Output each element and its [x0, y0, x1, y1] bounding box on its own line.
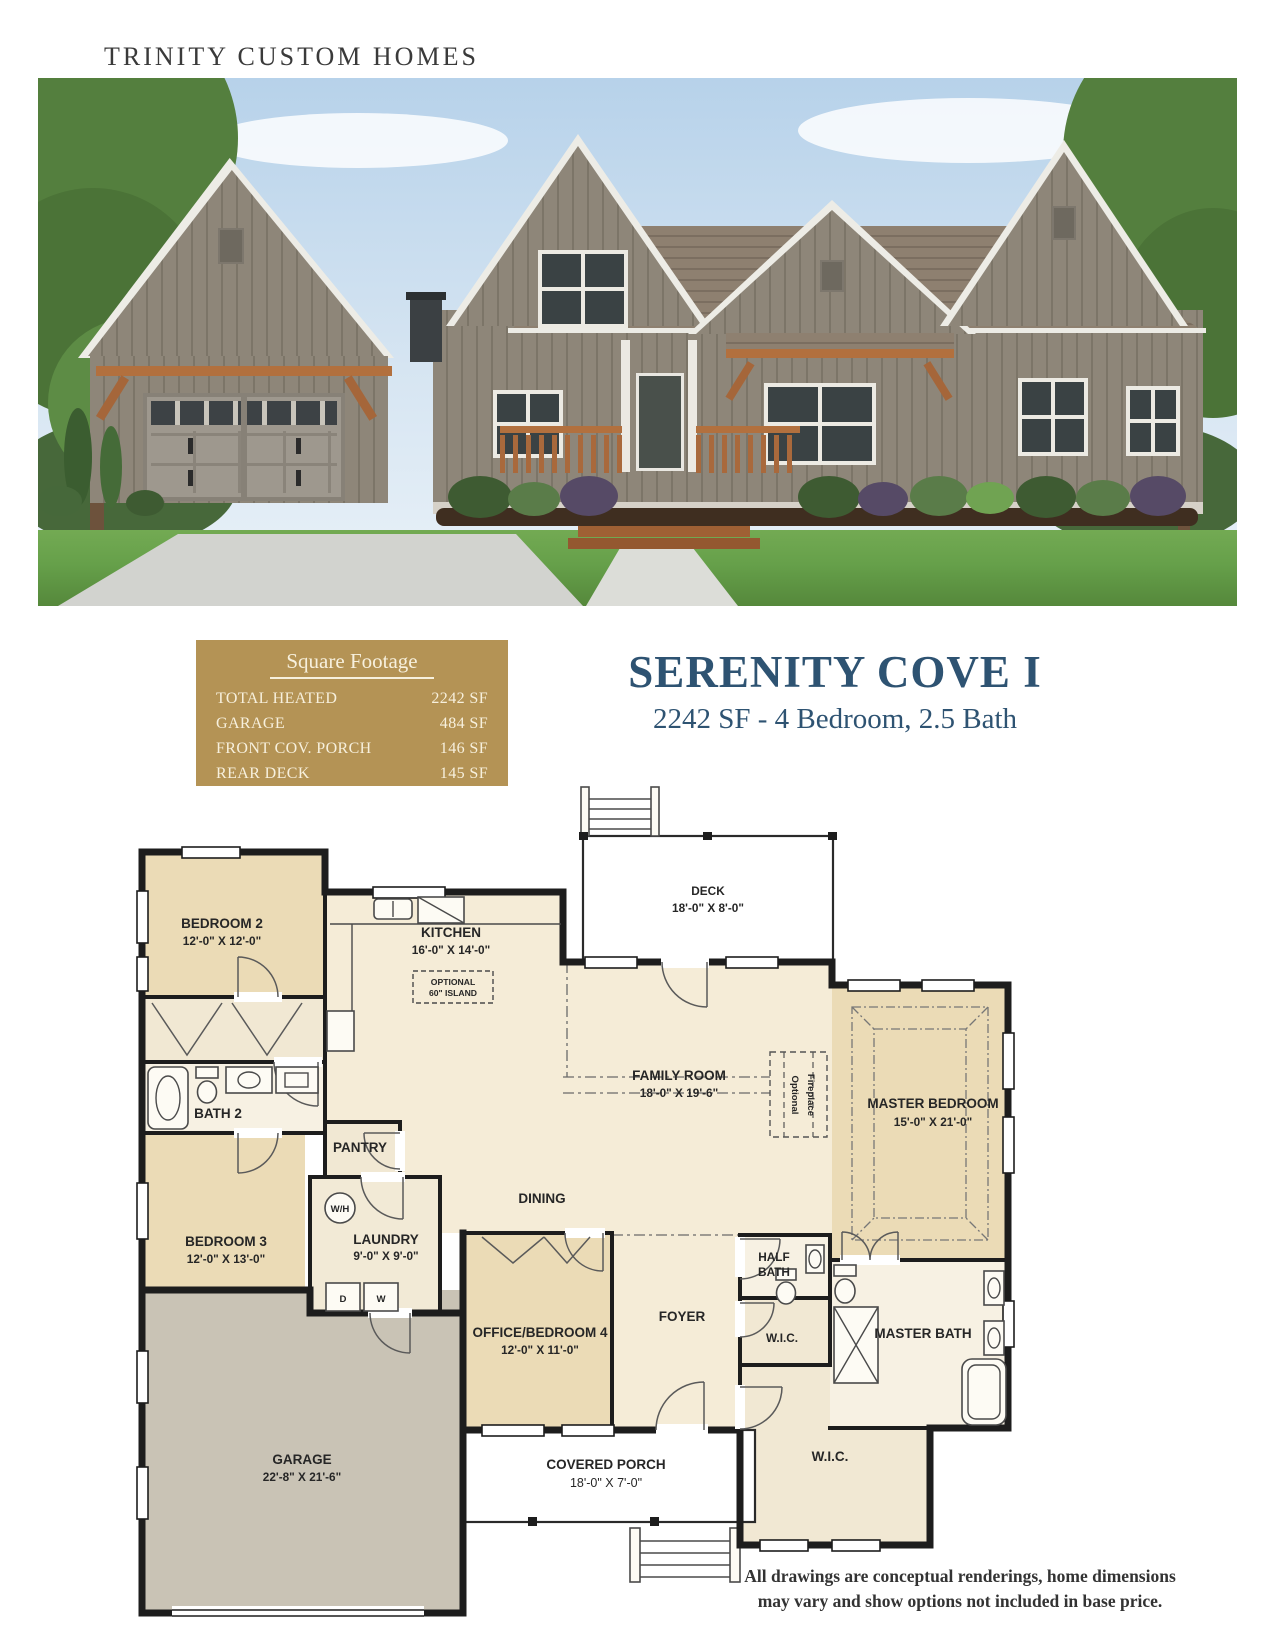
sf-row-total-heated: TOTAL HEATED 2242 SF — [216, 686, 488, 711]
wic-large-label: W.I.C. — [812, 1449, 849, 1464]
floor-plan: DECK 18'-0" X 8'-0" KITCHEN 16'-0" X 14'… — [130, 745, 1015, 1625]
bush — [448, 476, 512, 518]
porch-balusters — [500, 435, 622, 473]
toilet — [777, 1282, 796, 1304]
water-heater-label: W/H — [331, 1204, 350, 1215]
master-sink — [984, 1271, 1004, 1305]
vanity — [276, 1067, 318, 1093]
porch-balusters — [696, 435, 800, 473]
pantry-label: PANTRY — [333, 1140, 387, 1155]
office-dims: 12'-0" X 11'-0" — [501, 1343, 579, 1357]
bush — [1076, 480, 1130, 516]
island-label-1: OPTIONAL — [431, 977, 475, 987]
kitchen-label: KITCHEN — [421, 925, 481, 940]
wic-small-label: W.I.C. — [766, 1331, 798, 1345]
toilet-tank — [196, 1067, 218, 1078]
laundry-label: LAUNDRY — [353, 1232, 419, 1247]
deck-stair-rail — [651, 787, 659, 836]
garage-door-hinge — [296, 438, 301, 454]
bush — [966, 482, 1014, 514]
family-dims: 18'-0" X 19'-6" — [640, 1086, 718, 1100]
laundry-dims: 9'-0" X 9'-0" — [353, 1249, 418, 1263]
bedroom2-dims: 12'-0" X 12'-0" — [183, 934, 261, 948]
brochure-page: TRINITY CUSTOM HOMES — [0, 0, 1275, 1650]
foyer-label: FOYER — [659, 1309, 706, 1324]
sf-label: TOTAL HEATED — [216, 686, 337, 711]
washer-label: W — [376, 1294, 386, 1305]
bedroom3-dims: 12'-0" X 13'-0" — [187, 1252, 265, 1266]
garage-dims: 22'-8" X 21'-6" — [263, 1470, 341, 1484]
porch-dims: 18'-0" X 7'-0" — [570, 1476, 642, 1490]
deck-dims: 18'-0" X 8'-0" — [672, 901, 744, 915]
sf-label: GARAGE — [216, 711, 285, 736]
deck-stairs — [589, 799, 651, 829]
front-stair-rail — [630, 1528, 640, 1582]
garage-door-hinge — [296, 470, 301, 486]
bush — [508, 482, 560, 516]
bedroom2-label: BEDROOM 2 — [181, 916, 263, 931]
disclaimer: All drawings are conceptual renderings, … — [700, 1564, 1220, 1614]
half-bath-label-1: HALF — [758, 1250, 789, 1264]
bush — [798, 476, 860, 518]
square-footage-heading: Square Footage — [270, 649, 433, 679]
deck — [579, 787, 837, 962]
entry-step — [578, 526, 750, 537]
sf-value: 2242 SF — [431, 686, 488, 711]
toilet-tank — [834, 1265, 856, 1276]
front-window — [1126, 386, 1180, 456]
toilet — [198, 1081, 217, 1103]
bush — [560, 476, 618, 516]
entry-door — [636, 373, 684, 471]
garage-door-opening — [172, 1606, 424, 1619]
porch-post — [621, 340, 630, 472]
master-bedroom-dims: 15'-0" X 21'-0" — [894, 1115, 972, 1129]
dryer-label: D — [340, 1294, 347, 1305]
master-sink — [984, 1321, 1004, 1355]
disclaimer-line-2: may vary and show options not included i… — [700, 1589, 1220, 1614]
porch-post — [528, 1517, 537, 1526]
bush — [858, 482, 908, 516]
bush — [126, 490, 164, 516]
gable-vent — [218, 228, 244, 264]
toilet — [835, 1279, 855, 1303]
bush — [1016, 476, 1076, 518]
porch-railing — [696, 426, 800, 433]
garage-door-hinge — [188, 470, 193, 486]
bush — [1130, 476, 1186, 516]
sf-row-garage: GARAGE 484 SF — [216, 711, 488, 736]
garage-label: GARAGE — [272, 1452, 331, 1467]
kitchen-dims: 16'-0" X 14'-0" — [412, 943, 490, 957]
window-awning-roof — [726, 333, 954, 349]
dining-label: DINING — [518, 1191, 565, 1206]
half-bath-label-2: BATH — [758, 1265, 790, 1279]
cloud — [208, 113, 508, 168]
deck-label: DECK — [691, 884, 725, 898]
chimney — [410, 298, 442, 362]
porch-railing — [500, 426, 622, 433]
garage-door-hinge — [188, 438, 193, 454]
gable-vent — [1052, 206, 1076, 240]
front-window — [1018, 378, 1088, 456]
bush — [38, 486, 82, 516]
garage-door-post — [241, 397, 247, 497]
fireplace-label-1: Optional — [789, 1076, 800, 1115]
bedroom3-label: BEDROOM 3 — [185, 1234, 267, 1249]
deck-stair-rail — [581, 787, 589, 836]
vanity — [226, 1067, 272, 1093]
porch-post — [650, 1517, 659, 1526]
cedar-beam — [96, 366, 392, 376]
plan-subtitle: 2242 SF - 4 Bedroom, 2.5 Bath — [530, 703, 1140, 736]
builder-logo: TRINITY CUSTOM HOMES — [104, 42, 479, 72]
family-label: FAMILY ROOM — [632, 1068, 726, 1083]
refrigerator — [327, 1011, 354, 1051]
plan-title: SERENITY COVE I — [530, 646, 1140, 698]
island-label-2: 60" ISLAND — [429, 988, 477, 998]
sf-value: 484 SF — [440, 711, 488, 736]
entry-step — [568, 538, 760, 549]
fireplace-label-2: Fireplace — [805, 1074, 816, 1116]
gable-vent — [820, 260, 844, 292]
master-bath-label: MASTER BATH — [874, 1326, 971, 1341]
chimney-cap — [406, 292, 446, 300]
plan-title-block: SERENITY COVE I 2242 SF - 4 Bedroom, 2.5… — [530, 646, 1140, 736]
window-awning-beam — [726, 349, 954, 358]
covered-porch — [463, 1430, 755, 1582]
evergreen — [100, 426, 122, 508]
office-label: OFFICE/BEDROOM 4 — [472, 1325, 607, 1340]
house-rendering — [38, 78, 1237, 606]
center-gable-window — [538, 250, 628, 328]
porch-label: COVERED PORCH — [546, 1457, 665, 1472]
bath2-label: BATH 2 — [194, 1106, 242, 1121]
disclaimer-line-1: All drawings are conceptual renderings, … — [700, 1564, 1220, 1589]
master-bedroom-label: MASTER BEDROOM — [867, 1096, 998, 1111]
bush — [910, 476, 968, 516]
